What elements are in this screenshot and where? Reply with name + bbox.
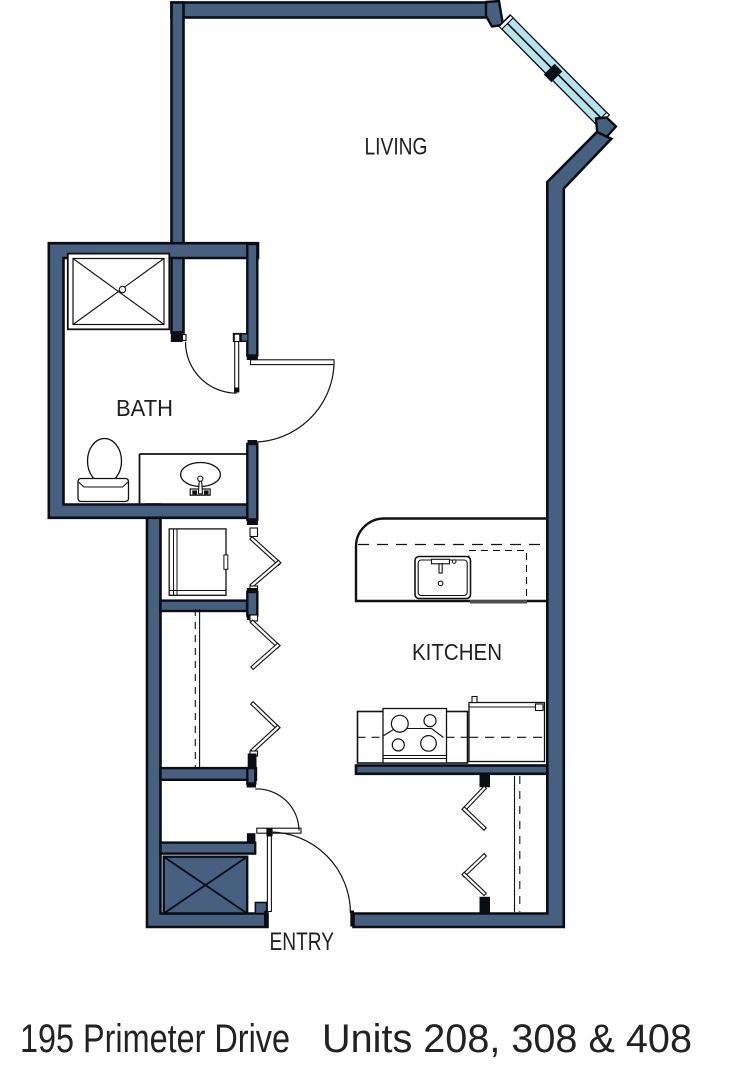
- svg-text:KITCHEN: KITCHEN: [412, 639, 502, 665]
- svg-text:BATH: BATH: [116, 395, 173, 421]
- svg-text:LIVING: LIVING: [365, 134, 428, 161]
- svg-text:Units 208, 308 & 408: Units 208, 308 & 408: [322, 1017, 692, 1061]
- svg-text:195 Primeter Drive: 195 Primeter Drive: [20, 1017, 290, 1061]
- svg-text:ENTRY: ENTRY: [270, 928, 335, 956]
